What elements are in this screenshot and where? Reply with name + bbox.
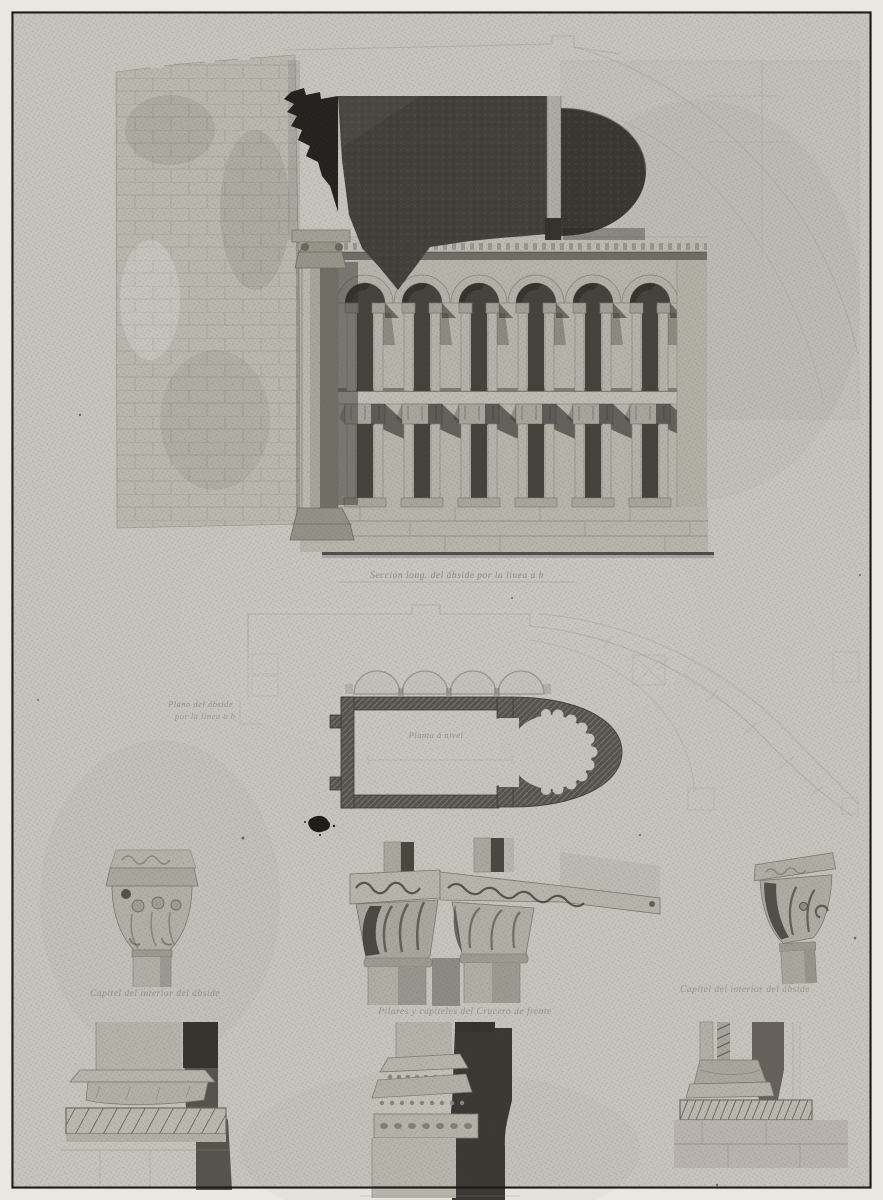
plate-scan: Sección long. del ábside por la línea a … (0, 0, 883, 1200)
plate-page: Sección long. del ábside por la línea a … (0, 0, 883, 1200)
